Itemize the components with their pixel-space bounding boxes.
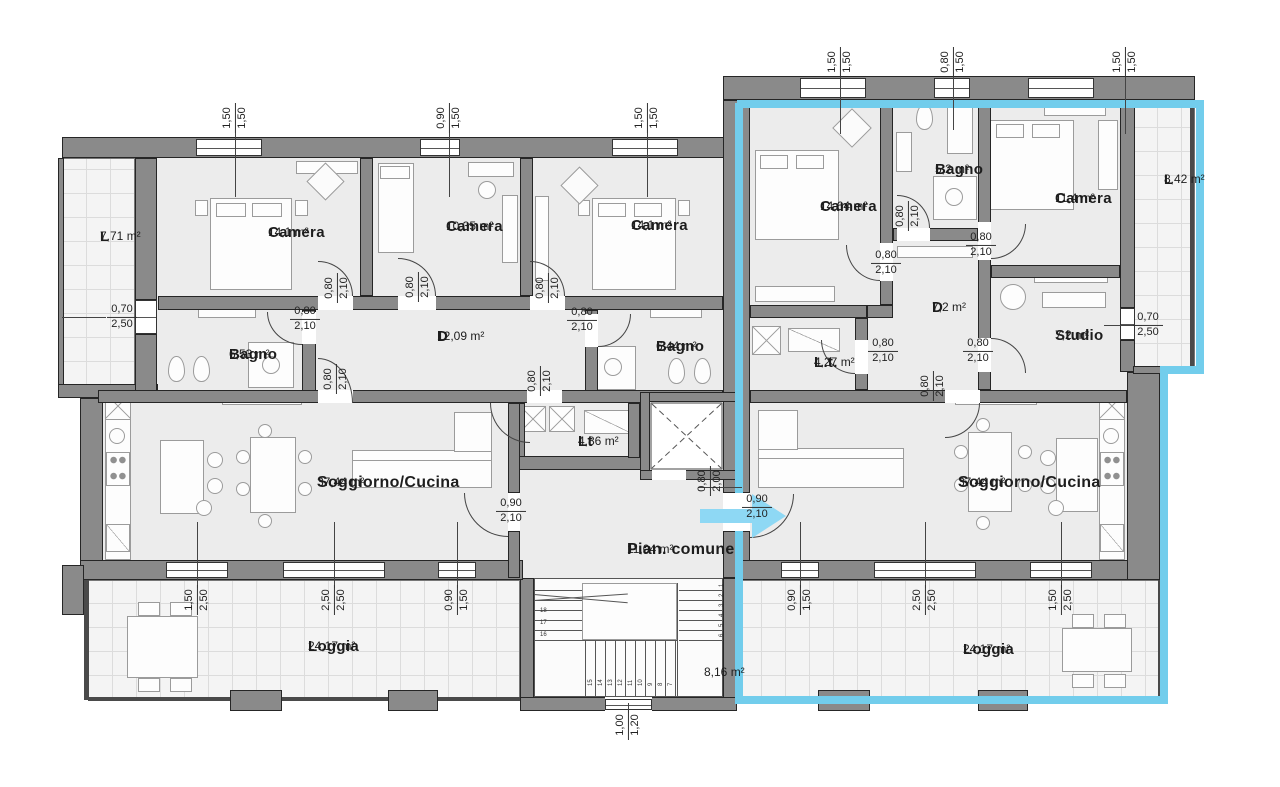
dimension-height: 2,10 (550, 277, 562, 298)
pillow (796, 155, 824, 169)
toilet (694, 358, 711, 384)
pillow (380, 166, 410, 179)
room-area: 5,2 m² (935, 162, 969, 176)
dimension-height: 2,10 (339, 277, 351, 298)
wall (750, 305, 867, 318)
nightstand (195, 200, 208, 216)
room-area: 6,44 m² (656, 339, 697, 353)
desk (468, 162, 514, 177)
chair (954, 445, 968, 459)
chair (207, 452, 223, 468)
dimension-width: 0,90 (500, 498, 521, 510)
dimension-label: 0,902,10 (496, 498, 526, 524)
pillow (252, 203, 282, 217)
wardrobe (1098, 120, 1118, 190)
dimension-height: 2,10 (571, 322, 592, 334)
dimension-label: 0,802,10 (920, 371, 946, 401)
dimension-height: 2,10 (338, 368, 350, 389)
pillow (1032, 124, 1060, 138)
wall (360, 158, 373, 296)
dimension-label: 0,802,10 (290, 306, 320, 332)
dimension-width: 1,50 (827, 51, 839, 72)
stairs-area: 8,16 m² (704, 665, 745, 679)
stair-tread (655, 641, 656, 696)
stair-tread (675, 641, 676, 696)
dimension-width: 0,80 (294, 306, 315, 318)
outdoor-table (127, 616, 198, 678)
stair-tread (625, 641, 626, 696)
chair (298, 450, 312, 464)
highlight-outline (1160, 374, 1168, 704)
dimension-label: 0,802,10 (324, 273, 350, 303)
dimension-height: 2,10 (875, 265, 896, 277)
outdoor-chair (138, 678, 160, 692)
sofa-chaise (454, 412, 492, 452)
stair-tread (665, 641, 666, 696)
room-area: 10,35 m² (446, 219, 493, 233)
stair-tread (679, 630, 723, 631)
dimension-label: 0,802,10 (871, 250, 901, 276)
window (420, 139, 460, 156)
dimension-label: 0,802,10 (405, 272, 431, 302)
dimension-width: 0,90 (746, 494, 767, 506)
stair-landing (582, 583, 677, 640)
dimension-width: 0,80 (970, 232, 991, 244)
dimension-tick (334, 522, 335, 588)
appliance (1100, 524, 1124, 552)
window (612, 139, 678, 156)
dimension-height: 2,50 (199, 589, 211, 610)
outdoor-chair (138, 602, 160, 616)
dimension-height: 2,10 (500, 513, 521, 525)
wall (1120, 100, 1135, 308)
wall (640, 392, 737, 402)
wall (628, 403, 640, 458)
dimension-width: 0,80 (323, 368, 335, 389)
dimension-height: 2,10 (935, 375, 947, 396)
chair (207, 478, 223, 494)
bidet (193, 356, 210, 382)
dimension-label: 0,901,50 (444, 585, 470, 615)
shelf (1042, 292, 1106, 308)
dimension-tick (953, 76, 954, 130)
chair (298, 482, 312, 496)
chair (976, 516, 990, 530)
dining-table (250, 437, 296, 513)
dimension-height: 1,50 (842, 51, 854, 72)
room-area: 4,27 m² (814, 355, 855, 369)
chair (236, 482, 250, 496)
stair-tread (595, 641, 596, 696)
dimension-tick (1061, 522, 1062, 588)
dimension-width: 2,50 (912, 589, 924, 610)
outdoor-chair (1104, 614, 1126, 628)
washing-machine (549, 406, 575, 432)
dimension-height: 1,50 (955, 51, 967, 72)
room-area: 14,1 m² (268, 225, 309, 239)
stair-rail (534, 640, 677, 641)
chair (1040, 450, 1056, 466)
sink-vanity (896, 132, 912, 172)
pillar (388, 690, 438, 711)
dresser (897, 246, 973, 258)
stair-tread (679, 620, 723, 621)
highlight-outline (1196, 100, 1204, 374)
door-opening (945, 390, 980, 403)
window (135, 300, 157, 334)
room-area: 37,44 m² (317, 475, 364, 489)
room-area: 6,53 m² (229, 347, 270, 361)
toilet (168, 356, 185, 382)
outdoor-chair (170, 678, 192, 692)
room-area: 24,17 m² (963, 642, 1010, 656)
dimension-label: 1,501,50 (634, 103, 660, 133)
dimension-height: 2,50 (927, 589, 939, 610)
dimension-height: 2,50 (111, 319, 132, 331)
dimension-width: 0,90 (444, 589, 456, 610)
wall (513, 456, 643, 470)
dimension-tick (925, 522, 926, 588)
dimension-label: 0,802,10 (535, 273, 561, 303)
pillow (996, 124, 1024, 138)
stair-tread (679, 590, 723, 591)
dimension-height: 2,10 (294, 321, 315, 333)
dimension-tick (800, 522, 801, 588)
dimension-label: 1,501,50 (827, 47, 853, 77)
highlight-outline (737, 100, 1196, 108)
dimension-width: 1,50 (184, 589, 196, 610)
dimension-width: 1,50 (222, 107, 234, 128)
dimension-label: 1,001,20 (615, 710, 641, 740)
cooktop (1100, 452, 1124, 486)
dimension-height: 1,50 (649, 107, 661, 128)
dimension-width: 0,80 (571, 307, 592, 319)
dimension-label: 0,802,10 (966, 232, 996, 258)
dimension-tick (840, 76, 841, 134)
dimension-label: 0,802,10 (895, 201, 921, 231)
dimension-width: 1,50 (1112, 51, 1124, 72)
nightstand (295, 200, 308, 216)
dimension-label: 2,502,50 (321, 585, 347, 615)
nightstand (678, 200, 690, 216)
wall (991, 265, 1120, 278)
dimension-width: 0,80 (920, 375, 932, 396)
wall (158, 296, 723, 310)
room-area: 37,44 m² (958, 475, 1005, 489)
dimension-width: 0,80 (697, 470, 709, 491)
dimension-width: 0,90 (787, 589, 799, 610)
shower-drain (945, 188, 963, 206)
dimension-label: 2,502,50 (912, 585, 938, 615)
dimension-width: 0,80 (940, 51, 952, 72)
dimension-label: 0,802,10 (868, 338, 898, 364)
wall (62, 565, 84, 615)
dimension-tick (62, 317, 106, 318)
dimension-height: 2,10 (970, 247, 991, 259)
wall (1127, 372, 1160, 580)
dimension-tick (647, 133, 648, 197)
dimension-tick (197, 522, 198, 588)
office-chair (1000, 284, 1026, 310)
outdoor-chair (1072, 614, 1094, 628)
window (800, 78, 866, 98)
room-area: 7,2 m² (1055, 328, 1089, 342)
highlight-outline (735, 103, 743, 493)
room-area: 4,86 m² (578, 434, 619, 448)
stair-tread (635, 641, 636, 696)
stair-rail (677, 583, 678, 696)
wall (520, 578, 534, 711)
window (934, 78, 970, 98)
dimension-width: 1,00 (615, 714, 627, 735)
stair-tread (605, 641, 606, 696)
window (196, 139, 262, 156)
room-area: 12,09 m² (437, 329, 484, 343)
stair-tread (679, 610, 723, 611)
pillow (216, 203, 246, 217)
dimension-height: 2,50 (1137, 327, 1158, 339)
dimension-height: 1,50 (1127, 51, 1139, 72)
dimension-label: 0,802,00 (697, 466, 723, 496)
elevator-icon (650, 402, 723, 470)
stair-tread (679, 640, 723, 641)
dimension-tick (449, 133, 450, 197)
door-opening (652, 470, 686, 480)
washing-machine (752, 326, 781, 355)
dimension-label: 0,802,10 (527, 366, 553, 396)
outdoor-chair (1104, 674, 1126, 688)
parapet (84, 580, 89, 700)
dimension-label: 0,802,10 (323, 364, 349, 394)
dimension-width: 0,80 (872, 338, 893, 350)
dimension-width: 0,70 (111, 304, 132, 316)
dimension-height: 2,10 (910, 205, 922, 226)
dimension-width: 0,90 (436, 107, 448, 128)
wall (867, 305, 893, 318)
chair (1048, 500, 1064, 516)
dimension-height: 2,50 (336, 589, 348, 610)
dimension-width: 2,50 (321, 589, 333, 610)
dining-table (968, 432, 1012, 512)
sofa-chaise (758, 410, 798, 450)
dimension-label: 1,501,50 (222, 103, 248, 133)
dimension-label: 0,702,50 (1133, 312, 1163, 338)
wall (98, 390, 723, 403)
shower-drain (604, 358, 622, 376)
dimension-label: 0,802,10 (963, 338, 993, 364)
dimension-height: 1,50 (459, 589, 471, 610)
room-area: 7,2 m² (932, 300, 966, 314)
wall (640, 392, 650, 480)
stair-tread (585, 641, 586, 696)
stair-tread (679, 600, 723, 601)
chair (976, 418, 990, 432)
elevator (650, 402, 723, 470)
chair (196, 500, 212, 516)
window (1028, 78, 1094, 98)
chair (1018, 445, 1032, 459)
parapet (1190, 108, 1194, 370)
dimension-width: 0,70 (1137, 312, 1158, 324)
dimension-tick (457, 522, 458, 588)
dimension-width: 0,80 (875, 250, 896, 262)
dimension-label: 1,501,50 (1112, 47, 1138, 77)
wall (508, 531, 520, 578)
dimension-width: 1,50 (1048, 589, 1060, 610)
dimension-width: 0,80 (895, 205, 907, 226)
dimension-width: 1,50 (634, 107, 646, 128)
appliance (106, 524, 130, 552)
stair-tread (534, 590, 582, 591)
dimension-label: 0,902,10 (742, 494, 772, 520)
dimension-height: 2,00 (712, 470, 724, 491)
dimension-height: 1,20 (630, 714, 642, 735)
dimension-label: 0,802,10 (567, 307, 597, 333)
dimension-label: 0,901,50 (787, 585, 813, 615)
dimension-width: 0,80 (324, 277, 336, 298)
dimension-height: 1,50 (802, 589, 814, 610)
desk-chair (478, 181, 496, 199)
room-area: 8,42 m² (1164, 172, 1205, 186)
shelf (584, 410, 632, 434)
dresser (755, 286, 835, 302)
room-area: 24,17 m² (308, 639, 355, 653)
pillar (230, 690, 282, 711)
dimension-height: 1,50 (237, 107, 249, 128)
cooktop (106, 452, 130, 486)
dimension-label: 0,702,50 (107, 304, 137, 330)
highlight-outline (737, 696, 1168, 704)
dimension-height: 2,10 (420, 276, 432, 297)
dimension-tick (235, 133, 236, 197)
dimension-height: 2,10 (967, 353, 988, 365)
stair-tread (534, 630, 582, 631)
room-area: 14,1 m² (631, 218, 672, 232)
dimension-width: 0,80 (967, 338, 988, 350)
dimension-height: 2,50 (1063, 589, 1075, 610)
wall (58, 158, 64, 398)
parapet (88, 697, 520, 701)
pillow (760, 155, 788, 169)
door-opening (855, 340, 868, 374)
kitchen-sink (1103, 428, 1119, 444)
chair (258, 514, 272, 528)
dimension-label: 0,801,50 (940, 47, 966, 77)
pillow (598, 203, 626, 217)
pillow (634, 203, 662, 217)
chair (258, 424, 272, 438)
bidet (668, 358, 685, 384)
wall (80, 398, 103, 580)
room-area: 11,04 m² (627, 542, 673, 556)
chair (236, 450, 250, 464)
dimension-width: 0,80 (527, 370, 539, 391)
room-area: 11,4 m² (1055, 191, 1095, 205)
wardrobe (502, 195, 518, 263)
room-area: 7,71 m² (100, 229, 141, 243)
dimension-height: 2,10 (542, 370, 554, 391)
dimension-label: 1,502,50 (1048, 585, 1074, 615)
room-area: 14,64 m² (820, 199, 867, 213)
stair-tread (645, 641, 646, 696)
dimension-width: 0,80 (405, 276, 417, 297)
dimension-height: 2,10 (746, 509, 767, 521)
dimension-tick (1125, 76, 1126, 134)
tiled-floor (62, 158, 135, 386)
dimension-label: 0,901,50 (436, 103, 462, 133)
stair-tread (615, 641, 616, 696)
bathtub (947, 104, 973, 154)
outdoor-chair (1072, 674, 1094, 688)
wall (135, 334, 157, 396)
floor-plan: L7,71 m²Camera14,1 m²Camera10,35 m²Camer… (0, 0, 1280, 787)
kitchen-sink (109, 428, 125, 444)
dimension-height: 2,10 (872, 353, 893, 365)
dimension-height: 1,50 (451, 107, 463, 128)
dimension-width: 0,80 (535, 277, 547, 298)
dimension-label: 1,502,50 (184, 585, 210, 615)
highlight-outline (1160, 366, 1204, 374)
outdoor-table (1062, 628, 1132, 672)
